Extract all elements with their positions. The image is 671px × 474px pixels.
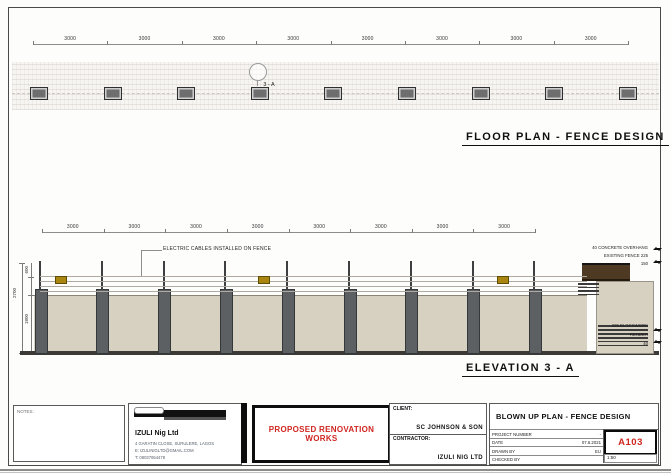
- field-value: -: [600, 432, 601, 437]
- dimension-tick: [405, 41, 406, 45]
- dimension-tick: [289, 229, 290, 233]
- field-label: PROJECT NUMBER: [492, 432, 532, 437]
- fence-post: [35, 289, 48, 354]
- dimension-tick: [33, 41, 34, 45]
- dimension-tick: [165, 229, 166, 233]
- client-contractor-panel: CLIENT: SC JOHNSON & SON CONTRACTOR: IZU…: [389, 403, 487, 465]
- dimension-tick: [182, 41, 183, 45]
- section-annotation: 40: [516, 341, 648, 346]
- section-annotation: 40 CONCRETE OVERHANG: [516, 245, 648, 250]
- field-value: EU: [595, 449, 601, 454]
- dimension-tick: [628, 41, 629, 45]
- floor-plan-bay-dimension: 3000: [426, 36, 458, 42]
- elevation-bay-dimension: 3000: [180, 224, 212, 230]
- electric-fence-warning-sign: [258, 276, 270, 284]
- notes-panel: NOTES:: [13, 405, 125, 462]
- electric-fence-warning-sign: [55, 276, 67, 284]
- scan-edge-line: [0, 469, 671, 471]
- elevation-bay-dimension: 3000: [242, 224, 274, 230]
- elevation-bay-dimension: 3000: [57, 224, 89, 230]
- electric-wire: [40, 291, 587, 292]
- dimension-tick: [479, 41, 480, 45]
- floor-plan-bay-dimension: 3000: [203, 36, 235, 42]
- field-label: DRAWN BY: [492, 449, 515, 454]
- scale-cell: 1:50: [604, 454, 657, 463]
- dimension-tick: [331, 41, 332, 45]
- fence-post-plan: [104, 87, 122, 100]
- dimension-tick: [554, 41, 555, 45]
- fence-post-plan: [619, 87, 637, 100]
- project-stamp: PROPOSED RENOVATION WORKS: [252, 405, 391, 463]
- fence-post-plan: [545, 87, 563, 100]
- hatch-line: [598, 329, 648, 331]
- floor-plan-bay-dimension: 3000: [129, 36, 161, 42]
- field-value: 07.6.2021: [582, 440, 601, 445]
- fence-post: [220, 289, 233, 354]
- project-stamp-text: PROPOSED RENOVATION WORKS: [255, 425, 388, 443]
- fence-post-plan: [398, 87, 416, 100]
- field-label: CHECKED BY: [492, 457, 520, 462]
- fence-post: [96, 289, 109, 354]
- company-panel: IZULI Nig Ltd 4 GARATIN CLOSE, SURULERE,…: [128, 403, 242, 465]
- client-label: CLIENT:: [393, 406, 412, 412]
- floor-plan-bay-dimension: 3000: [352, 36, 384, 42]
- contractor-label: CONTRACTOR:: [393, 436, 430, 442]
- floor-plan-bay-dimension: 3000: [54, 36, 86, 42]
- electric-wire: [40, 286, 587, 287]
- drawing-sheet: 3 - A FLOOR PLAN - FENCE DESIGN ELECTRIC…: [0, 0, 671, 474]
- elevation-bay-dimension: 3000: [118, 224, 150, 230]
- fence-post-plan: [251, 87, 269, 100]
- dimension-tick: [107, 41, 108, 45]
- hatch-line: [578, 287, 599, 289]
- client-row: CLIENT: SC JOHNSON & SON: [390, 404, 486, 434]
- company-address: 4 GARATIN CLOSE, SURULERE, LAGOS: [135, 441, 214, 446]
- field-label: DATE: [492, 440, 503, 445]
- fence-post-plan: [177, 87, 195, 100]
- company-logo-icon: [164, 417, 226, 420]
- field-row: DRAWN BYEU: [490, 446, 603, 455]
- fence-post-plan: [472, 87, 490, 100]
- dimension-tick: [227, 229, 228, 233]
- fence-post-plan: [30, 87, 48, 100]
- notes-label: NOTES:: [17, 409, 34, 414]
- hatch-line: [578, 294, 599, 296]
- floor-plan-bay-dimension: 3000: [575, 36, 607, 42]
- contractor-row: CONTRACTOR: IZULI NIG LTD: [390, 434, 486, 464]
- sheet-number-box: A103: [604, 430, 657, 455]
- section-annotation: 225 BLOCKWORK: [516, 323, 648, 328]
- fence-post: [344, 289, 357, 354]
- floor-plan-bay-dimension: 3000: [500, 36, 532, 42]
- sheet-number: A103: [618, 437, 643, 448]
- dimension-tick: [42, 229, 43, 233]
- dimension-tick: [412, 229, 413, 233]
- dimension-tick: [535, 229, 536, 233]
- fields-table: PROJECT NUMBER-DATE07.6.2021DRAWN BYEUCH…: [490, 429, 603, 464]
- floor-plan-bay-dimension: 3000: [277, 36, 309, 42]
- field-row: PROJECT NUMBER-: [490, 429, 603, 438]
- elevation-bay-dimension: 3000: [488, 224, 520, 230]
- dimension-tick: [350, 229, 351, 233]
- fence-post: [158, 289, 171, 354]
- field-row: DATE07.6.2021: [490, 438, 603, 447]
- company-email: E: IZULINIGLTD@GMAIL.COM: [135, 448, 194, 453]
- company-name: IZULI Nig Ltd: [135, 430, 179, 437]
- company-phone: T: 08037654478: [135, 455, 165, 460]
- client-name: SC JOHNSON & SON: [390, 425, 483, 431]
- elevation-bay-dimension: 3000: [427, 224, 459, 230]
- hatch-line: [578, 290, 599, 292]
- drawing-title: BLOWN UP PLAN - FENCE DESIGN: [496, 404, 631, 429]
- fence-post: [467, 289, 480, 354]
- contractor-name: IZULI NIG LTD: [390, 455, 483, 461]
- title-block-divider: [241, 403, 247, 463]
- dimension-tick: [256, 41, 257, 45]
- fence-post-plan: [324, 87, 342, 100]
- company-logo-icon: [134, 407, 164, 414]
- field-row: CHECKED BY: [490, 455, 603, 464]
- section-annotation: EXISTING FENCE 225: [516, 253, 648, 258]
- fence-post: [282, 289, 295, 354]
- fence-post: [405, 289, 418, 354]
- dimension-tick: [473, 229, 474, 233]
- scan-edge-line: [0, 472, 671, 473]
- electric-fence-warning-sign: [497, 276, 509, 284]
- hatch-line: [578, 283, 599, 285]
- elevation-bay-dimension: 3000: [365, 224, 397, 230]
- dimension-tick: [104, 229, 105, 233]
- elevation-bay-dimension: 3000: [303, 224, 335, 230]
- section-annotation: 150: [516, 261, 648, 266]
- section-annotation: RENDER: [516, 332, 648, 337]
